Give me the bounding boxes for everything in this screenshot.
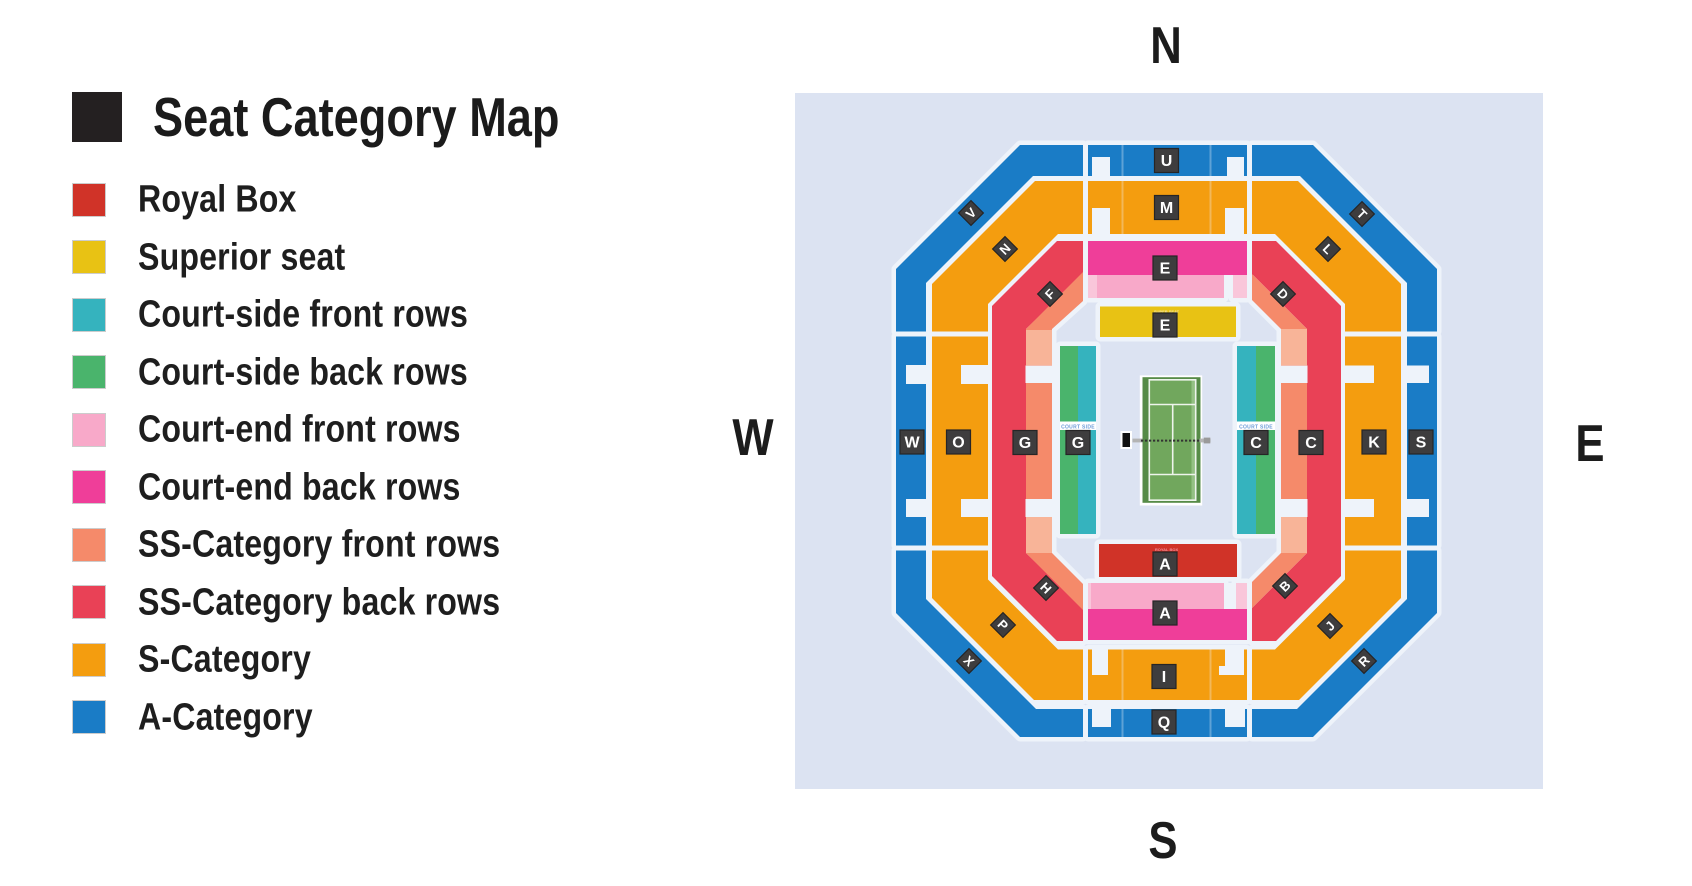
svg-text:A: A (1159, 606, 1171, 623)
svg-text:U: U (1161, 153, 1173, 170)
svg-text:C: C (1250, 435, 1262, 452)
svg-text:I: I (1162, 669, 1166, 686)
svg-text:S: S (1416, 435, 1427, 452)
svg-text:C: C (1305, 435, 1317, 452)
svg-text:E: E (1160, 318, 1171, 335)
svg-text:G: G (1072, 435, 1084, 452)
svg-text:M: M (1160, 200, 1173, 217)
svg-text:Q: Q (1158, 715, 1170, 732)
svg-text:COURT SIDE: COURT SIDE (1061, 424, 1095, 430)
svg-text:G: G (1019, 435, 1031, 452)
svg-text:K: K (1368, 435, 1380, 452)
svg-text:A: A (1159, 557, 1171, 574)
svg-text:E: E (1160, 261, 1171, 278)
svg-text:ROYAL BOX: ROYAL BOX (1155, 547, 1179, 552)
svg-text:COURT SIDE: COURT SIDE (1239, 424, 1273, 430)
svg-text:W: W (904, 435, 920, 452)
svg-text:O: O (952, 435, 964, 452)
